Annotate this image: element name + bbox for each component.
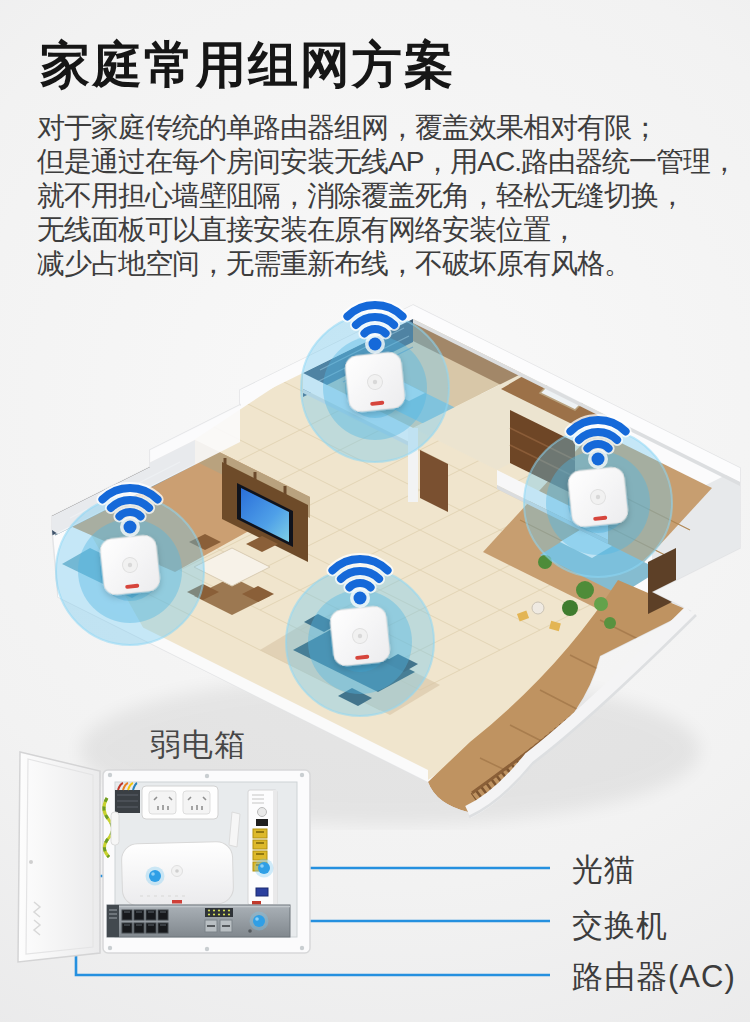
- intro-paragraph: 对于家庭传统的单路由器组网，覆盖效果相对有限； 但是通过在每个房间安装无线AP，…: [37, 111, 737, 281]
- power-socket: [142, 786, 218, 819]
- annotation-label-switch: 交换机: [572, 905, 668, 947]
- paragraph-line: 对于家庭传统的单路由器组网，覆盖效果相对有限；: [37, 111, 737, 145]
- paragraph-line: 无线面板可以直接安装在原有网络安装位置，: [37, 213, 737, 247]
- annotation-label-router: 路由器(AC): [572, 956, 736, 998]
- paragraph-line: 就不用担心墙壁阻隔，消除覆盖死角，轻松无缝切换，: [37, 179, 737, 213]
- wireless-ap-device: [344, 351, 406, 413]
- paragraph-line: 减少占地空间，无需重新布线，不破坏原有风格。: [37, 247, 737, 281]
- page: 家庭常用组网方案 对于家庭传统的单路由器组网，覆盖效果相对有限； 但是通过在每个…: [0, 0, 750, 1022]
- connector-dot-modem: [255, 859, 274, 878]
- modem-fiber-port: [256, 888, 268, 896]
- connector-dot-switch: [250, 912, 269, 931]
- optical-modem-device: [248, 790, 277, 905]
- page-title: 家庭常用组网方案: [40, 36, 456, 94]
- cabinet-box: [103, 770, 310, 953]
- router-antenna-left: [111, 812, 119, 845]
- annotation-label-modem: 光猫: [572, 849, 636, 891]
- connector-dot-router: [146, 867, 165, 886]
- cabinet-door: [18, 752, 100, 962]
- wireless-ap-device: [99, 534, 161, 596]
- paragraph-line: 但是通过在每个房间安装无线AP，用AC.路由器统一管理，: [37, 145, 737, 179]
- switch-vent: [205, 908, 233, 917]
- floorplan-illustration: [0, 290, 750, 830]
- wireless-ap-device: [329, 605, 391, 667]
- wireless-ap-device: [567, 466, 629, 528]
